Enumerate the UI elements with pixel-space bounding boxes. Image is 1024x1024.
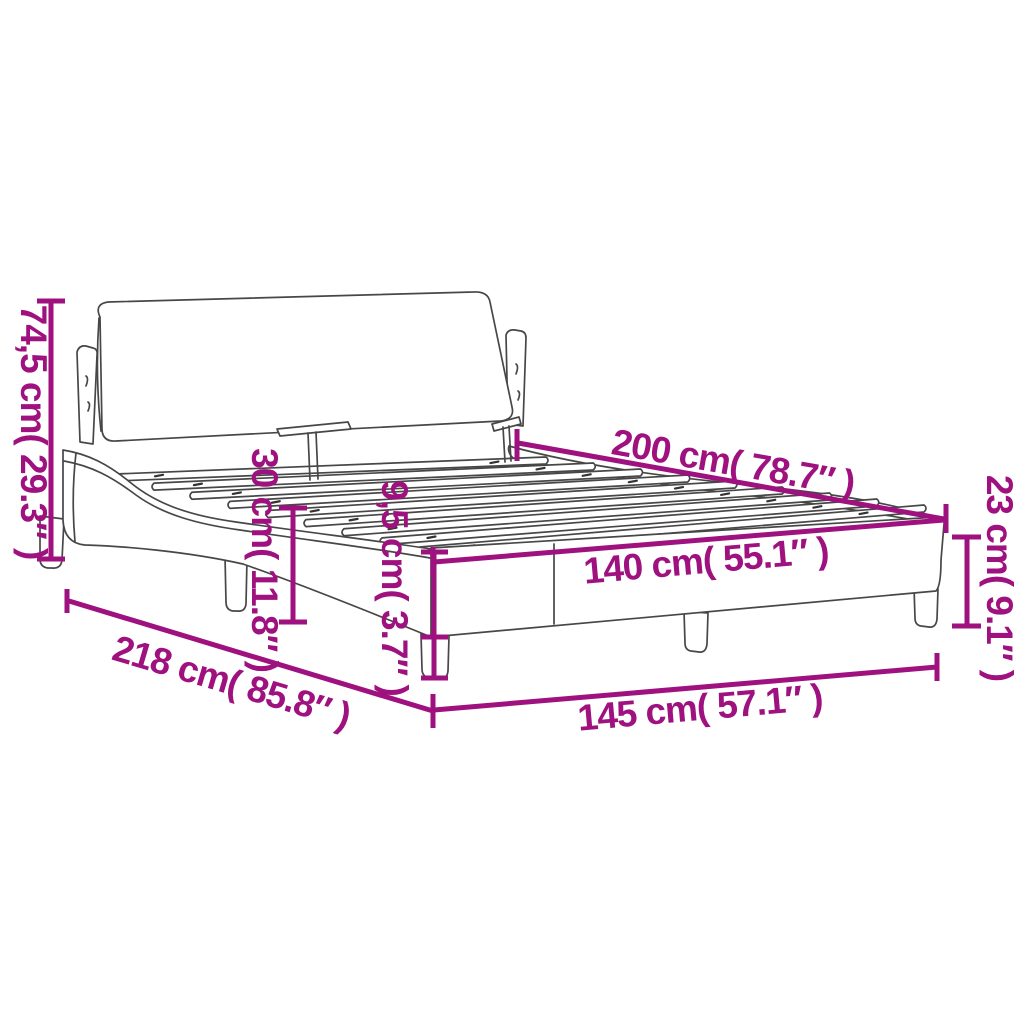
slat-notch [350,519,358,521]
slat-notch [194,484,202,486]
label-frame-height: 23 cm( 9.1″ ) [979,475,1020,681]
slat-notch [721,493,729,495]
slat-notch [675,487,683,489]
slat-notch [490,462,498,464]
label-slat-top-height: 30 cm( 11.8″ ) [244,448,285,672]
slat-notch [155,475,163,477]
diagram-canvas: 74,5 cm( 29.3″ ) 30 cm( 11.8″ ) 9,5 cm( … [0,0,1024,1024]
leg-front-center [684,611,708,652]
slat-notch [427,536,435,538]
slat-notch [537,468,545,470]
slat-notch [813,506,821,508]
label-outer-length: 218 cm( 85.8″ ) [108,628,355,737]
slat-notch [311,510,319,512]
label-leg-height: 9,5 cm( 3.7″ ) [374,480,415,696]
headboard [97,292,512,441]
headboard-left-post [77,346,97,444]
slat-notch [233,492,241,494]
slat-notch [860,513,868,515]
bed-dimension-diagram: 74,5 cm( 29.3″ ) 30 cm( 11.8″ ) 9,5 cm( … [0,0,1024,1024]
label-headboard-height: 74,5 cm( 29.3″ ) [13,305,54,560]
slat-notch [583,474,591,476]
slat-notch [629,481,637,483]
slat-notch [767,500,775,502]
